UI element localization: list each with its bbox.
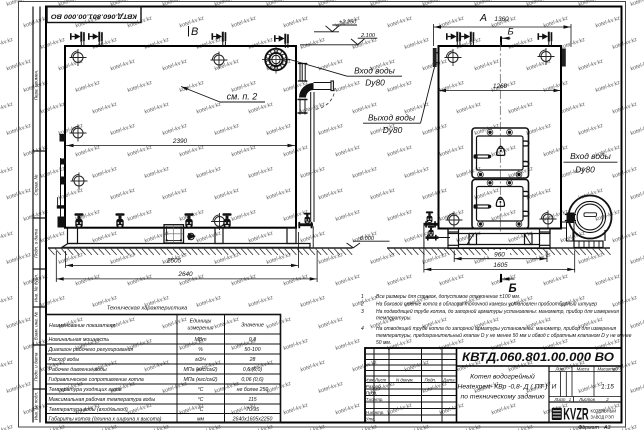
svg-text:Н.контр.: Н.контр. [366, 410, 385, 415]
svg-text:50 мм.: 50 мм. [376, 340, 391, 346]
svg-text:2505: 2505 [166, 258, 182, 265]
svg-text:Подп. и дата: Подп. и дата [34, 229, 39, 258]
svg-text:50-100: 50-100 [244, 347, 260, 353]
svg-text:МВт: МВт [194, 337, 207, 343]
svg-text:Масса: Масса [577, 367, 590, 372]
svg-text:Максимальная рабочая температу: Максимальная рабочая температура воды [49, 397, 156, 403]
svg-text:МПа (кгс/см2): МПа (кгс/см2) [184, 367, 218, 373]
svg-text:температуры, предохранительный: температуры, предохранительный клапан D … [376, 332, 632, 339]
svg-text:Вход воды: Вход воды [354, 66, 395, 76]
svg-text:0,6 (6,0): 0,6 (6,0) [243, 367, 263, 373]
svg-text:ЗАВОД РЭП: ЗАВОД РЭП [591, 414, 614, 419]
svg-text:2640: 2640 [177, 271, 193, 278]
svg-text:На отводящей трубе котла до за: На отводящей трубе котла до запорной арм… [376, 325, 617, 332]
svg-text:Габариты котла (длинна х ширин: Габариты котла (длинна х ширина х высота… [49, 417, 162, 423]
svg-text:Лист: Лист [553, 397, 565, 402]
svg-text:температуры.: температуры. [376, 316, 412, 322]
svg-text:°С: °С [198, 407, 204, 413]
svg-text:Б: Б [508, 27, 514, 38]
svg-text:Рабочее давление воды: Рабочее давление воды [49, 367, 107, 373]
svg-text:Разраб.: Разраб. [366, 384, 382, 389]
svg-text:Взам. инв. №: Взам. инв. № [34, 312, 39, 340]
svg-text:На боковой стенке котла в обла: На боковой стенке котла в области топочн… [376, 300, 597, 307]
svg-text:Формат: Формат [578, 425, 600, 430]
svg-text:На подводящей трубе котла, д: На подводящей трубе котла, до запорной а… [376, 308, 619, 315]
svg-text:1605: 1605 [493, 262, 508, 269]
svg-text:2390: 2390 [172, 138, 188, 145]
svg-text:Т.контр.: Т.контр. [366, 397, 384, 402]
svg-text:28: 28 [249, 357, 256, 363]
svg-text:Пров.: Пров. [366, 390, 378, 395]
svg-text:Изм.: Изм. [365, 377, 374, 382]
svg-text:2.100: 2.100 [360, 33, 376, 39]
svg-text:3: 3 [361, 309, 364, 315]
svg-text:Диапазон рабочего регулировани: Диапазон рабочего регулирования [48, 347, 134, 353]
svg-text:Dy80: Dy80 [383, 125, 403, 135]
svg-text:4: 4 [361, 326, 364, 332]
svg-text:измерения: измерения [188, 326, 214, 332]
svg-text:Перв. примен.: Перв. примен. [34, 70, 39, 101]
svg-text:мм: мм [197, 417, 205, 423]
svg-text:Вход воды: Вход воды [570, 151, 611, 161]
svg-text:Подп. и дата: Подп. и дата [34, 352, 39, 381]
svg-text:по техническому заданию: по техническому заданию [461, 393, 545, 401]
svg-text:Dy80: Dy80 [365, 78, 385, 88]
svg-text:1260: 1260 [493, 83, 508, 90]
svg-text:И: И [552, 384, 557, 391]
svg-text:Инв. № дубл.: Инв. № дубл. [34, 274, 39, 302]
svg-text:2640х1605х2250: 2640х1605х2250 [232, 417, 273, 423]
svg-text:Дата: Дата [442, 377, 455, 382]
svg-text:м3/ч: м3/ч [195, 357, 206, 363]
svg-text:Dy80: Dy80 [575, 165, 595, 175]
svg-text:Heatexpert- КВр -0,8- Д ( ПТ ): Heatexpert- КВр -0,8- Д ( ПТ ) [458, 384, 548, 391]
svg-text:Выход воды: Выход воды [368, 113, 415, 123]
svg-text:КВТД.060.801.00.000 ВО: КВТД.060.801.00.000 ВО [50, 13, 137, 20]
svg-text:Лит.: Лит. [554, 367, 565, 372]
svg-text:+2.250: +2.250 [339, 20, 357, 26]
svg-text:0.000: 0.000 [360, 236, 375, 242]
svg-text:Котел водогрейный: Котел водогрейный [470, 373, 535, 381]
svg-text:115: 115 [248, 397, 256, 403]
svg-text:МПа (кгс/см2): МПа (кгс/см2) [184, 377, 218, 383]
svg-text:КОТЕЛЬНЫЙ: КОТЕЛЬНЫЙ [591, 408, 617, 413]
svg-text:N докум.: N докум. [396, 377, 414, 382]
svg-text:960: 960 [494, 251, 505, 258]
svg-text:Наименование показателя: Наименование показателя [49, 323, 115, 329]
svg-text:В: В [191, 26, 198, 38]
svg-text:Подп.: Подп. [425, 377, 437, 382]
svg-text:1:15: 1:15 [601, 383, 614, 390]
svg-text:Техническая характеристика: Техническая характеристика [107, 306, 188, 312]
svg-text:Все размеры для справок, допус: Все размеры для справок, допустимое откл… [376, 294, 520, 300]
svg-text:°С: °С [198, 397, 204, 403]
svg-text:0,06 (0,6): 0,06 (0,6) [241, 377, 263, 383]
svg-text:Инв. № подл.: Инв. № подл. [34, 392, 39, 421]
svg-text:Справ. №: Справ. № [34, 175, 39, 196]
svg-text:Температура уходящих газов: Температура уходящих газов [49, 387, 122, 393]
svg-text:А3: А3 [603, 425, 611, 430]
svg-text:0,8: 0,8 [249, 337, 256, 343]
svg-text:КВТД.060.801.00.000 ВО: КВТД.060.801.00.000 ВО [462, 350, 614, 364]
svg-text:Масштаб: Масштаб [597, 367, 618, 372]
svg-text:Расход воды: Расход воды [49, 357, 80, 363]
svg-text:KVZR: KVZR [563, 406, 589, 424]
svg-text:А: А [479, 12, 487, 24]
svg-text:Лист: Лист [374, 377, 387, 382]
svg-text:1: 1 [361, 294, 364, 300]
svg-text:%: % [198, 347, 203, 353]
svg-text:не более 250: не более 250 [237, 387, 269, 393]
svg-text:Номинальная мощность: Номинальная мощность [49, 337, 110, 343]
svg-text:Единицы: Единицы [190, 319, 212, 325]
svg-text:см. п. 2: см. п. 2 [227, 92, 258, 102]
svg-text:70/95: 70/95 [246, 407, 259, 413]
svg-text:Утв.: Утв. [366, 417, 376, 422]
svg-text:1360: 1360 [494, 16, 509, 23]
svg-text:2: 2 [360, 301, 364, 307]
svg-text:Температура воды (вход/выход): Температура воды (вход/выход) [49, 407, 128, 413]
svg-text:Значение: Значение [241, 323, 264, 329]
svg-text:°С: °С [198, 387, 204, 393]
svg-text:Гидравлическое сопротивление к: Гидравлическое сопротивление котла [49, 377, 144, 383]
svg-text:Листов: Листов [578, 397, 595, 402]
